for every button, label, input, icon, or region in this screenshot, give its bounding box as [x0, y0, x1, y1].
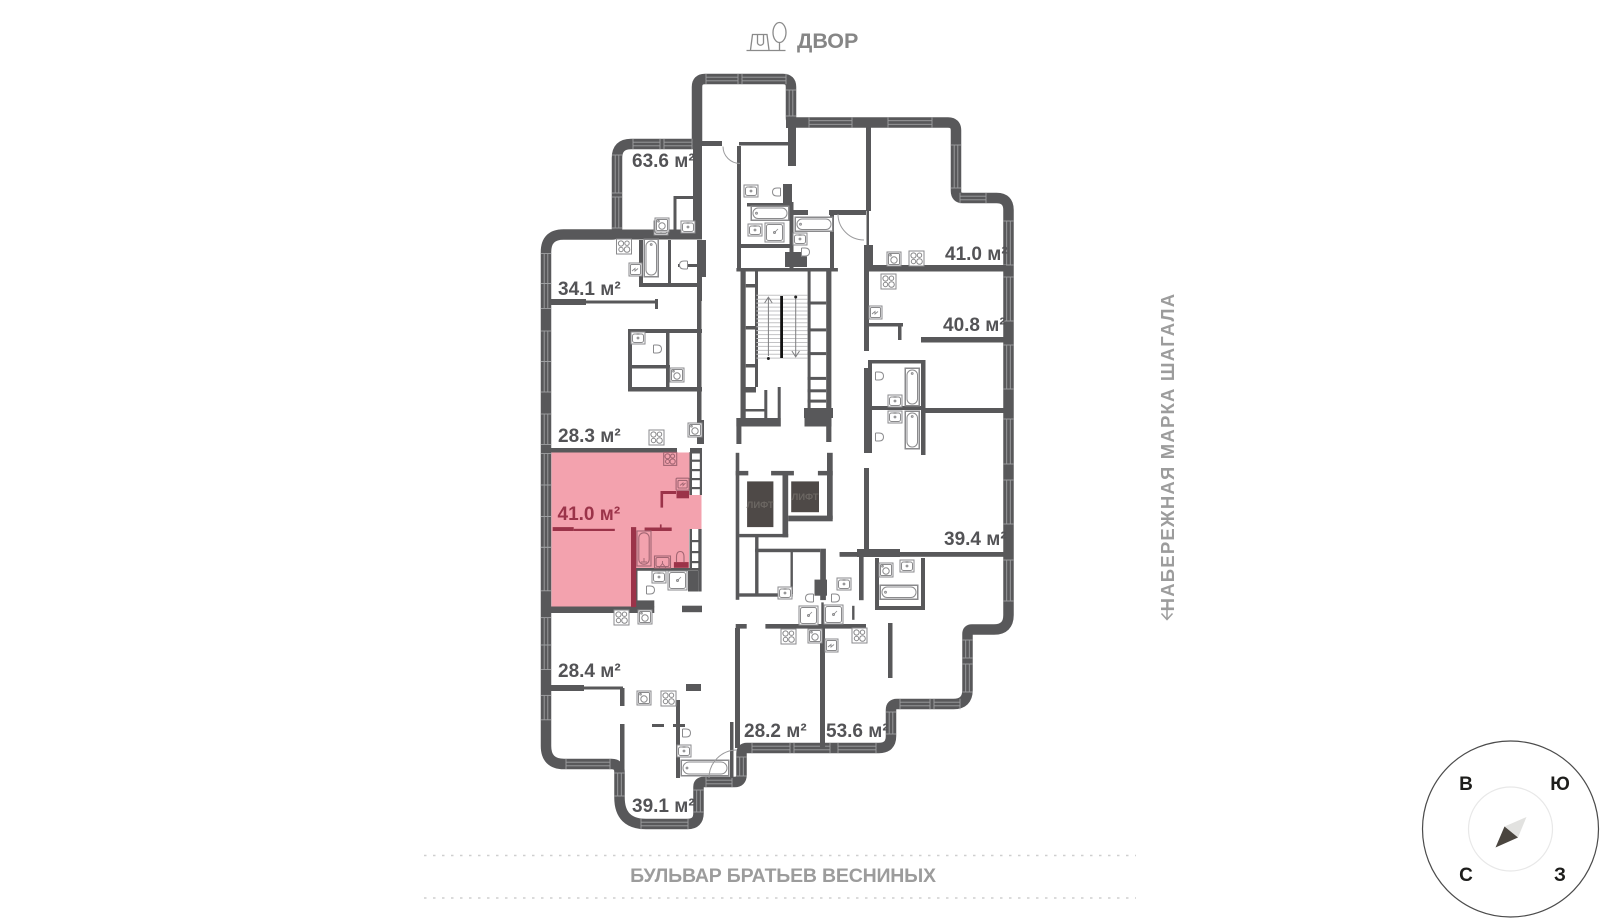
- svg-text:ДВОР: ДВОР: [797, 29, 858, 53]
- svg-text:41.0 м²: 41.0 м²: [945, 244, 1008, 265]
- svg-text:С: С: [1459, 865, 1473, 886]
- svg-text:63.6 м²: 63.6 м²: [632, 151, 695, 172]
- svg-text:39.1 м²: 39.1 м²: [632, 796, 695, 817]
- svg-text:53.6 м²: 53.6 м²: [826, 721, 889, 742]
- svg-text:З: З: [1554, 865, 1566, 886]
- svg-text:В: В: [1459, 774, 1473, 795]
- svg-text:НАБЕРЕЖНАЯ МАРКА ШАГАЛА: НАБЕРЕЖНАЯ МАРКА ШАГАЛА: [1157, 293, 1178, 612]
- svg-text:ЛИФТ: ЛИФТ: [747, 500, 774, 511]
- svg-text:Ю: Ю: [1550, 774, 1570, 795]
- svg-text:БУЛЬВАР БРАТЬЕВ ВЕСНИНЫХ: БУЛЬВАР БРАТЬЕВ ВЕСНИНЫХ: [630, 865, 936, 887]
- svg-text:39.4 м²: 39.4 м²: [944, 529, 1007, 550]
- svg-text:ЛИФТ: ЛИФТ: [792, 492, 819, 503]
- svg-text:28.3 м²: 28.3 м²: [558, 426, 621, 447]
- svg-text:34.1 м²: 34.1 м²: [558, 279, 621, 300]
- svg-text:41.0 м²: 41.0 м²: [558, 504, 621, 525]
- svg-text:40.8 м²: 40.8 м²: [943, 315, 1006, 336]
- svg-text:28.4 м²: 28.4 м²: [558, 661, 621, 682]
- svg-text:28.2 м²: 28.2 м²: [744, 721, 807, 742]
